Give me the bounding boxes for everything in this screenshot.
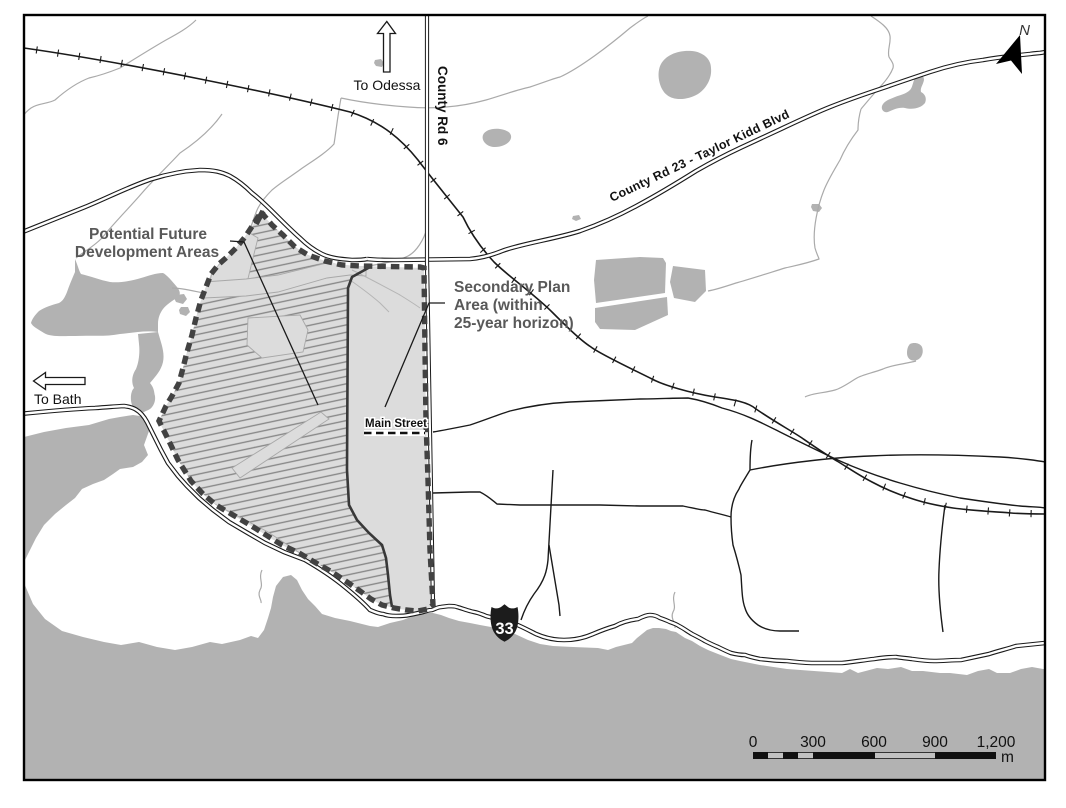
svg-text:N: N [1019, 22, 1030, 39]
svg-text:To Odessa: To Odessa [354, 77, 421, 93]
svg-text:To Bath: To Bath [34, 391, 81, 407]
svg-text:Potential Future: Potential Future [89, 226, 207, 243]
svg-text:900: 900 [922, 734, 948, 751]
svg-text:0: 0 [749, 734, 758, 751]
svg-text:m: m [1001, 749, 1014, 766]
svg-text:600: 600 [861, 734, 887, 751]
svg-text:Secondary Plan: Secondary Plan [454, 279, 570, 296]
svg-text:Main Street: Main Street [365, 418, 427, 430]
svg-text:County Rd 6: County Rd 6 [435, 66, 450, 146]
svg-text:300: 300 [800, 734, 826, 751]
svg-text:25-year horizon): 25-year horizon) [454, 315, 574, 332]
svg-text:Development Areas: Development Areas [75, 244, 219, 261]
svg-text:33: 33 [495, 620, 513, 638]
svg-text:Area (within: Area (within [454, 297, 543, 314]
